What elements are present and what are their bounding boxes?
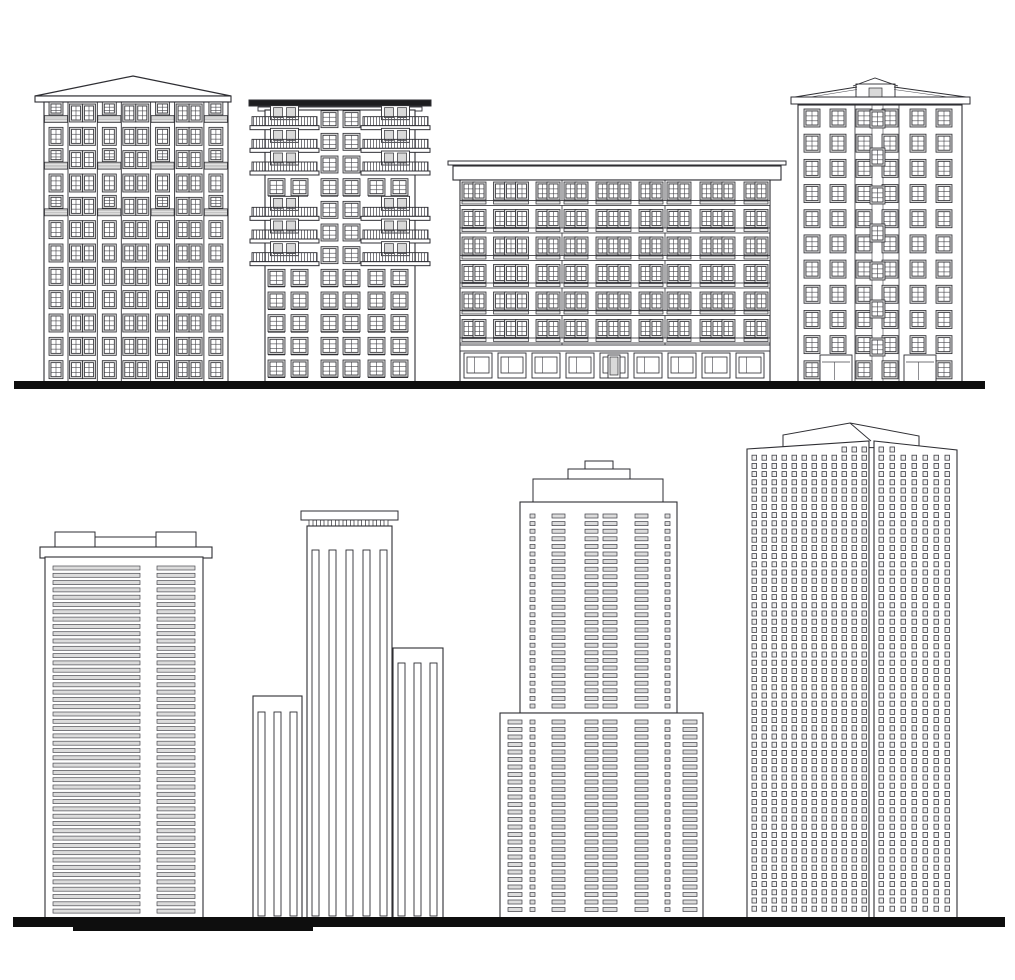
building-6-pilaster-towers [253,511,443,918]
ground-line-bottom [13,917,1005,927]
city-svg [0,0,1015,980]
building-4-gable-apartment [791,78,970,382]
ground-line-bottom-accent [73,927,313,931]
city-illustration [0,0,1015,980]
building-5-louver-tower [40,532,212,918]
building-8-perspective-tower [747,423,957,918]
ground-line-top [14,381,985,389]
building-1-classic-apartment [35,76,231,382]
building-3-block-of-flats [448,161,786,382]
building-2-balcony-tower [249,100,431,382]
building-7-stepped-tower [500,461,703,918]
